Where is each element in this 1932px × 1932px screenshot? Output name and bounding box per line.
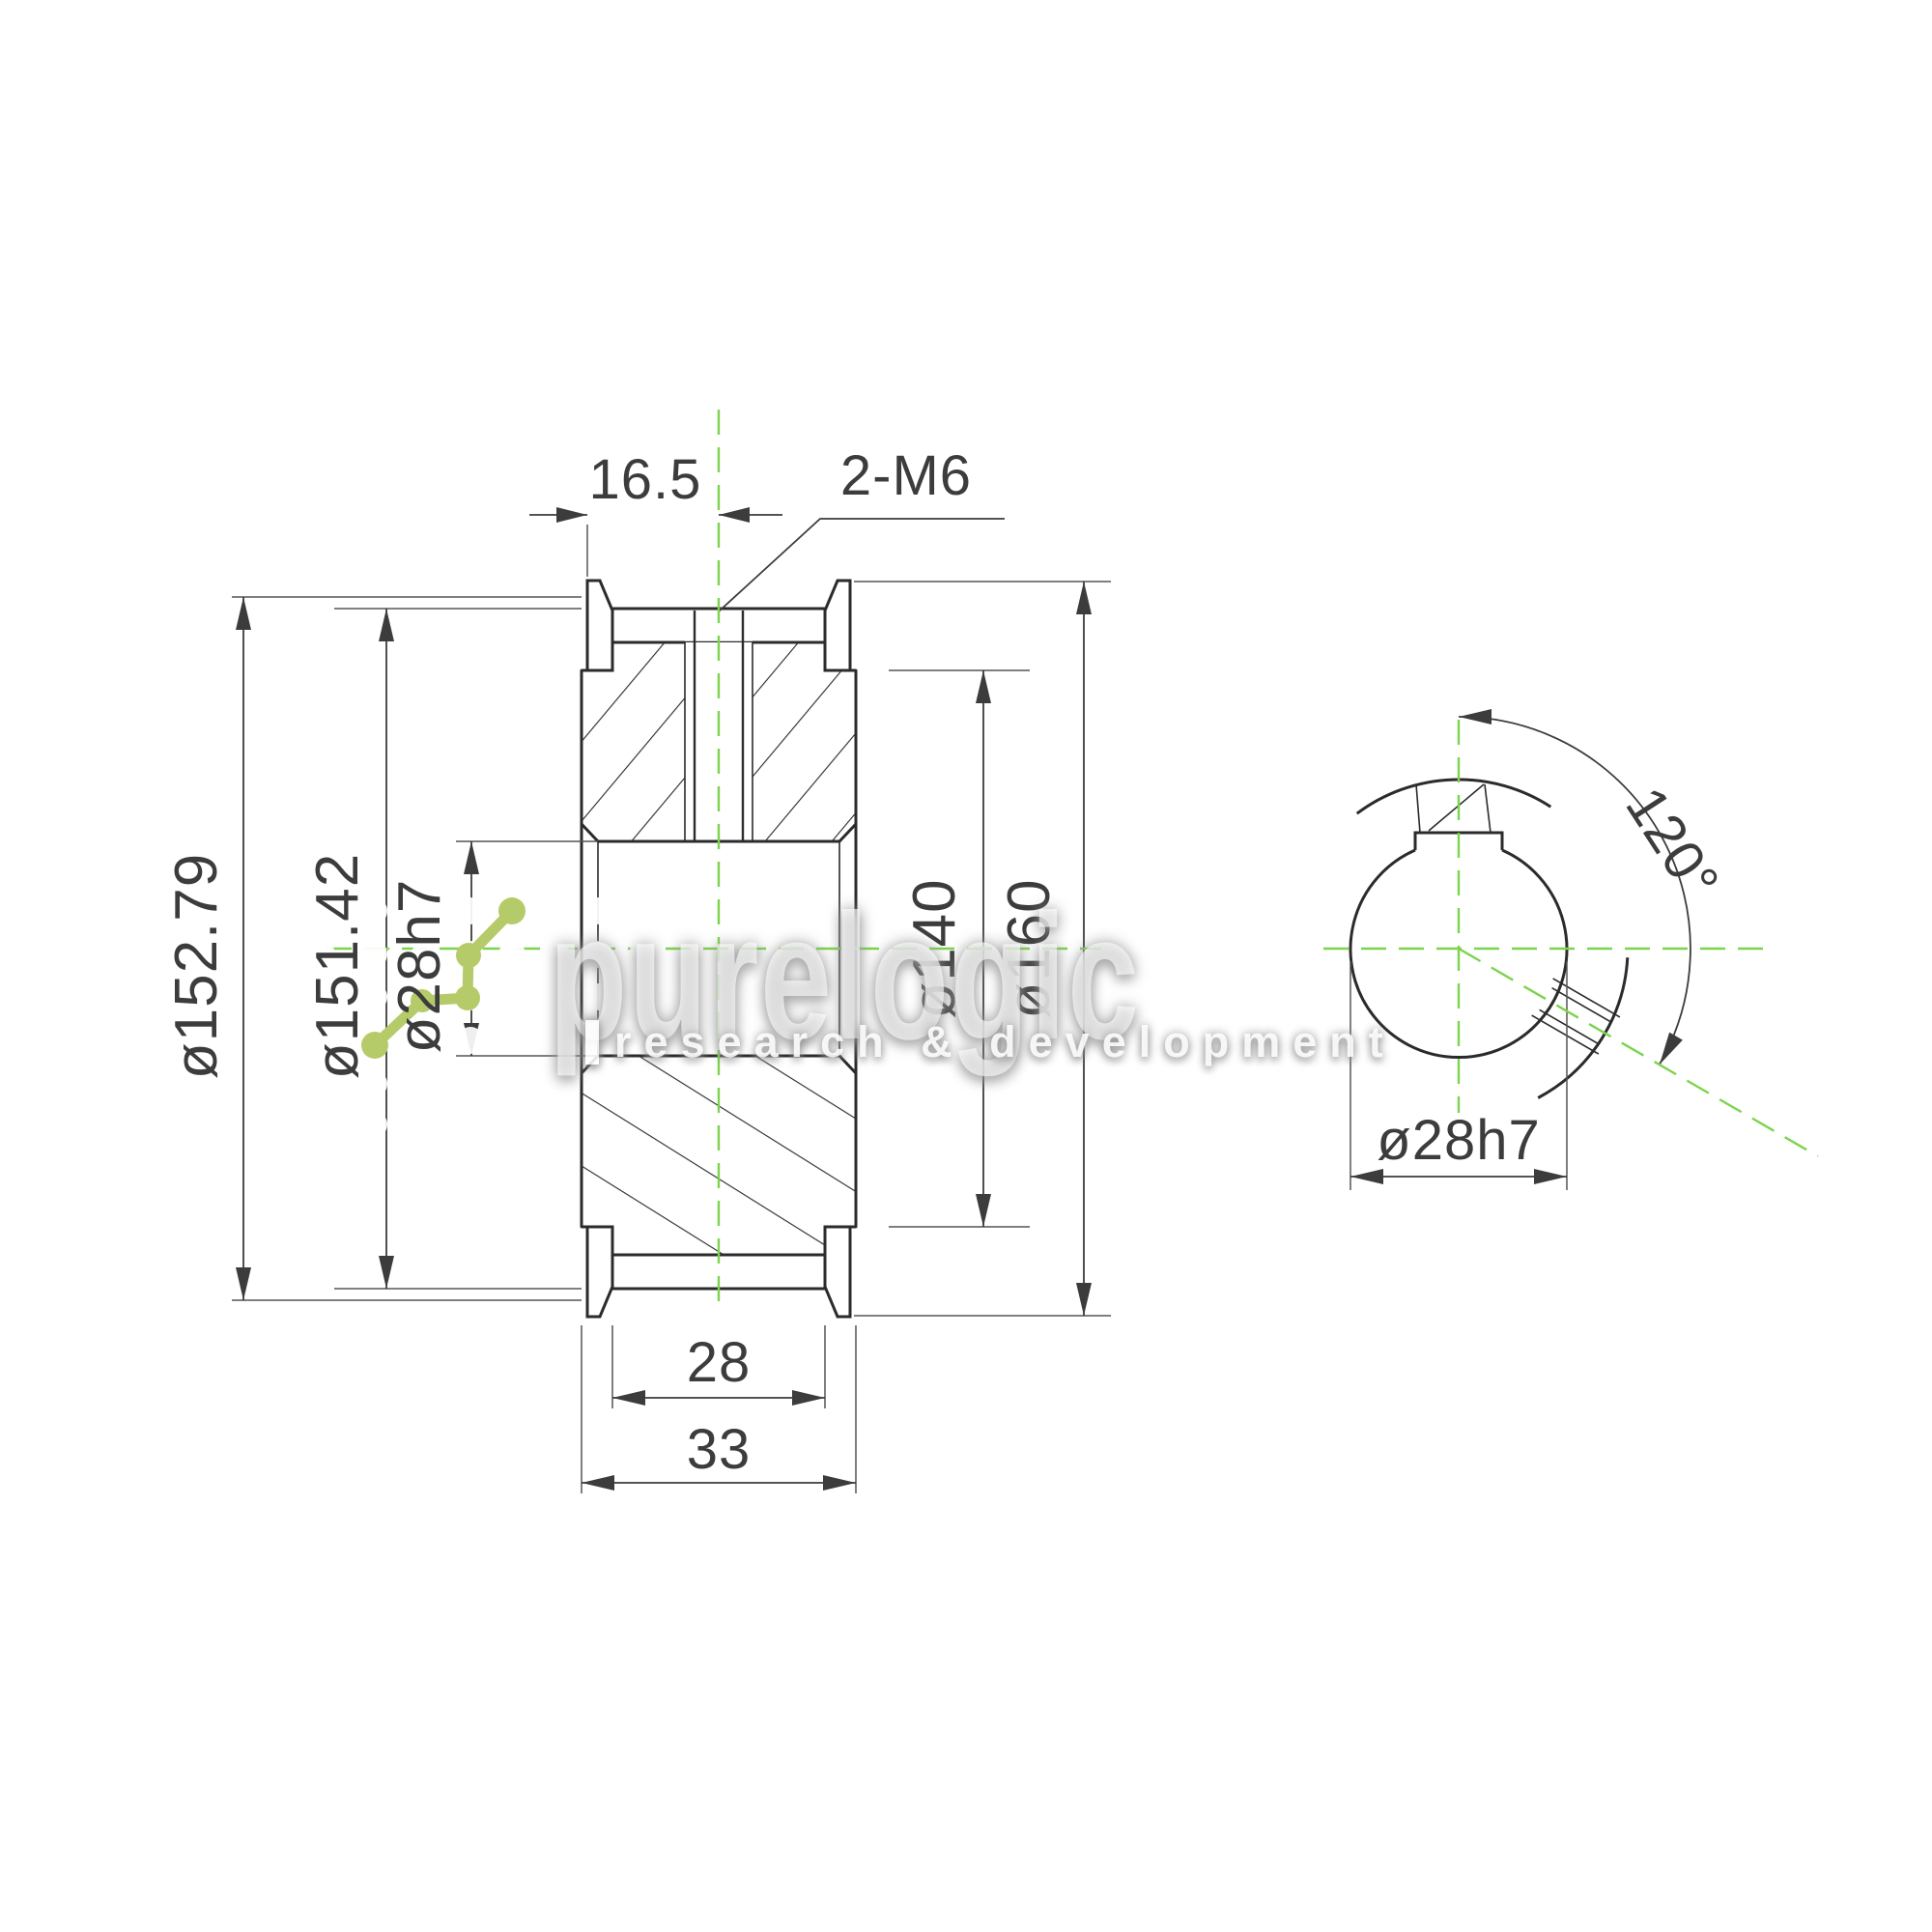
set-screw-hole-top: [1416, 784, 1491, 833]
dim-pitch-diameter-label: ø152.79: [163, 853, 230, 1080]
dim-flange-diameter-label: ø160: [996, 878, 1063, 1018]
outer-arc-upper: [1357, 780, 1551, 813]
dim-face-to-hole-label: 16.5: [589, 448, 702, 511]
bore-circle-and-keyway: [1350, 780, 1628, 1098]
dim-outside-diameter-label: ø151.42: [304, 853, 371, 1080]
dimension-labels: 16.5 2-M6 ø152.79 ø151.42 ø28h7 ø140 ø16…: [163, 444, 1731, 1481]
pulley-drawing: 16.5 2-M6 ø152.79 ø151.42 ø28h7 ø140 ø16…: [0, 0, 1932, 1932]
dim-root-diameter-label: ø140: [901, 878, 968, 1018]
dim-overall-width-label: 33: [687, 1418, 752, 1481]
dim-belt-width-label: 28: [687, 1331, 752, 1394]
dim-holes-angle-label: 120°: [1613, 777, 1731, 911]
dim-bore-diameter-label-end: ø28h7: [1377, 1109, 1540, 1172]
dim-holes-callout-label: 2-M6: [840, 444, 972, 507]
leader-2-m6: [719, 519, 1005, 611]
centerlines: [327, 410, 1818, 1304]
engineering-drawing-page: 16.5 2-M6 ø152.79 ø151.42 ø28h7 ø140 ø16…: [0, 0, 1932, 1932]
dim-bore-diameter-label-main: ø28h7: [386, 879, 453, 1054]
